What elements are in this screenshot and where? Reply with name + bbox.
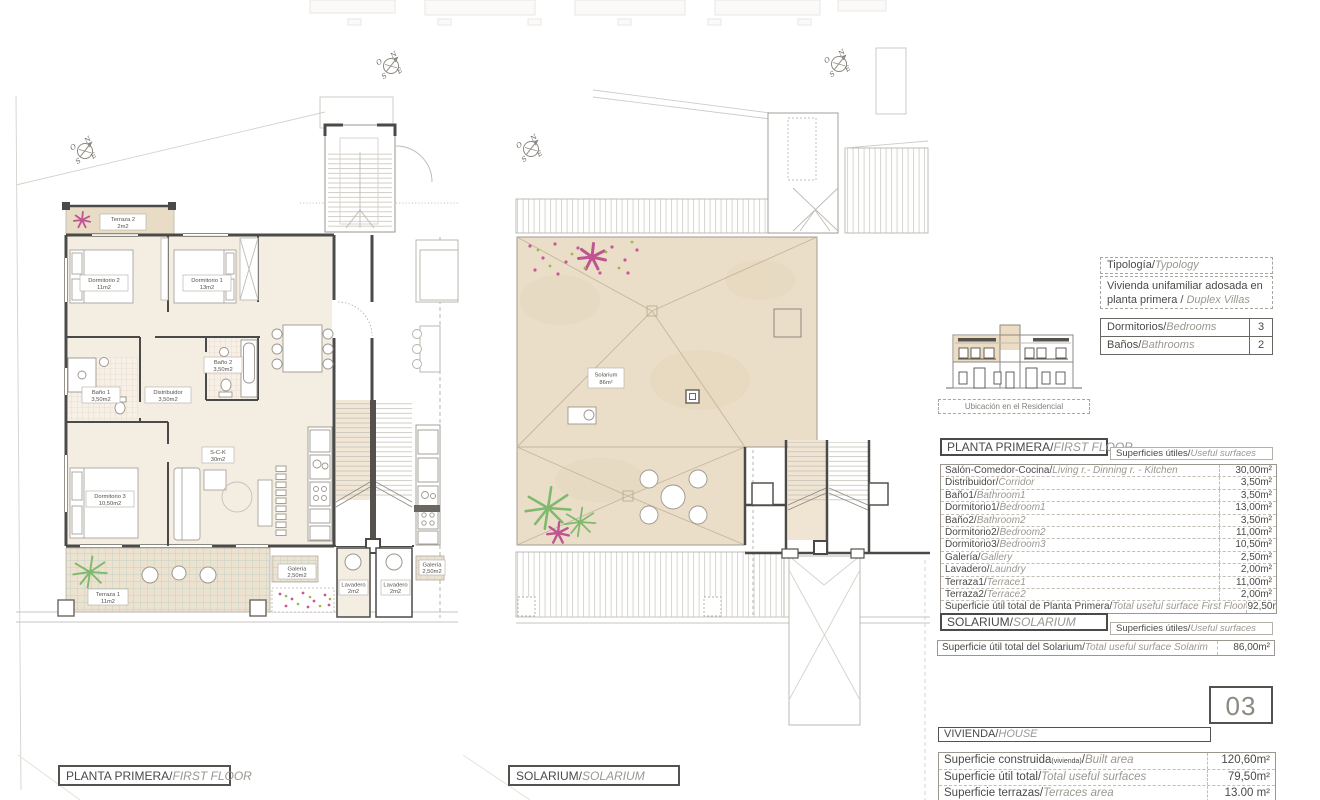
- surface-value: 11,00m²: [1219, 527, 1276, 538]
- surface-value: 13.00 m²: [1207, 786, 1275, 800]
- surface-row: Terraza2/Terrace22,00m²: [941, 588, 1276, 600]
- surface-value: 10,50m²: [1219, 539, 1276, 550]
- room-label: Galería2,50m2: [278, 564, 316, 579]
- surface-row: Dormitorio2/Bedroom211,00m²: [941, 526, 1276, 538]
- surface-value: 2,00m²: [1219, 589, 1276, 600]
- surface-row: Superficie terrazas/Terraces area 13.00 …: [939, 785, 1275, 800]
- bathrooms-label-en: Bathrooms: [1141, 339, 1194, 351]
- room-label: Baño 13,50m2: [82, 387, 120, 403]
- entry-door-arc: [338, 302, 372, 336]
- svg-text:Terraza 2: Terraza 2: [111, 217, 135, 223]
- svg-text:Terraza 1: Terraza 1: [96, 592, 120, 598]
- surface-value: 120,60m²: [1207, 753, 1275, 769]
- room-label: Terraza 22m2: [100, 214, 146, 230]
- surface-row: Salón-Comedor-Cocina/Living r.- Dinning …: [941, 465, 1276, 476]
- svg-text:2,50m2: 2,50m2: [422, 569, 441, 575]
- surface-value: 13,00m²: [1219, 502, 1276, 513]
- surface-value: 3,50m²: [1219, 490, 1276, 501]
- svg-text:O: O: [69, 142, 79, 152]
- compass-rose: N O E S: [375, 49, 405, 81]
- svg-text:E: E: [395, 66, 405, 76]
- svg-text:11m2: 11m2: [97, 285, 111, 291]
- sol-title-es: SOLARIUM/: [947, 615, 1013, 629]
- first-floor-plan: Terraza 22m2 Dormitorio 211m2 Dormitorio…: [16, 49, 460, 800]
- solarium-subtitle: Superficies útiles/Useful surfaces: [1110, 622, 1273, 635]
- surface-value: 92,50m²: [1246, 601, 1276, 612]
- room-label: Dormitorio 211m2: [80, 275, 128, 291]
- solarium-plan: Solarium 86m² N: [463, 47, 930, 800]
- house-title-es: VIVIENDA/: [944, 728, 998, 740]
- typology-body: Vivienda unifamiliar adosada en planta p…: [1100, 276, 1273, 309]
- svg-text:Dormitorio 2: Dormitorio 2: [88, 278, 120, 284]
- building-elevation: [938, 310, 1090, 396]
- typology-body-en: Duplex Villas: [1186, 294, 1249, 306]
- svg-text:O: O: [515, 140, 525, 150]
- surface-value: 2,50m²: [1219, 552, 1276, 563]
- svg-text:O: O: [375, 57, 385, 67]
- ff-caption-en: FIRST FLOOR: [172, 769, 251, 783]
- svg-text:Dormitorio 3: Dormitorio 3: [94, 494, 126, 500]
- room-label: Baño 23,50m2: [204, 357, 242, 373]
- room-label: Dormitorio 310,50m2: [86, 491, 134, 507]
- svg-text:Galería: Galería: [287, 567, 307, 573]
- typology-header: Tipología/Typology: [1100, 257, 1273, 274]
- neighbour-fragments: [413, 240, 459, 580]
- surface-value: 3,50m²: [1219, 515, 1276, 526]
- svg-text:2m2: 2m2: [117, 224, 128, 230]
- tv-unit: [258, 480, 272, 526]
- sol-subtitle-es: Superficies útiles/: [1116, 623, 1190, 634]
- first-floor-subtitle: Superficies útiles/Useful surfaces: [1110, 447, 1273, 460]
- room-terraza1: [58, 548, 270, 616]
- svg-text:30m2: 30m2: [211, 457, 226, 463]
- room-label: Galería2,50m2: [419, 560, 445, 575]
- svg-text:2,50m2: 2,50m2: [287, 573, 306, 579]
- sol-caption-es: SOLARIUM/: [516, 769, 582, 783]
- bedrooms-row: Dormitorios/Bedrooms 3: [1101, 319, 1272, 336]
- surface-row: Baño1/Bathroom13,50m²: [941, 489, 1276, 501]
- svg-text:E: E: [843, 64, 853, 74]
- svg-text:E: E: [89, 151, 99, 161]
- first-floor-caption: PLANTA PRIMERA/FIRST FLOOR: [58, 765, 231, 786]
- duplex-stairs: [336, 400, 412, 553]
- ff-subtitle-en: Useful surfaces: [1190, 448, 1255, 459]
- svg-text:2m2: 2m2: [348, 589, 359, 595]
- typology-title-es: Tipología/: [1107, 259, 1155, 271]
- ff-subtitle-es: Superficies útiles/: [1116, 448, 1190, 459]
- surface-row: Dormitorio1/Bedroom113,00m²: [941, 501, 1276, 513]
- sol-caption-en: SOLARIUM: [582, 769, 645, 783]
- svg-text:11m2: 11m2: [101, 599, 115, 605]
- surface-row: Lavadero/Laundry2,00m²: [941, 563, 1276, 575]
- location-caption: Ubicación en el Residencial: [938, 399, 1090, 414]
- surface-row: Galería/Gallery2,50m²: [941, 551, 1276, 563]
- first-floor-surfaces-table: Salón-Comedor-Cocina/Living r.- Dinning …: [940, 464, 1277, 614]
- surface-value: 30,00m²: [1219, 465, 1276, 476]
- svg-text:S-C-K: S-C-K: [210, 450, 226, 456]
- common-stairwell: [325, 125, 432, 232]
- svg-text:Dormitorio 1: Dormitorio 1: [191, 278, 223, 284]
- surface-value: 3,50m²: [1219, 477, 1276, 488]
- svg-text:13m2: 13m2: [200, 285, 215, 291]
- sol-title-en: SOLARIUM: [1013, 615, 1076, 629]
- house-surfaces-table: Superficie construida(vivienda)/Built ar…: [938, 752, 1276, 800]
- room-label: Solarium 86m²: [588, 368, 624, 388]
- surface-value: 79,50m²: [1207, 770, 1275, 786]
- neighbour-dining: [413, 326, 441, 372]
- solarium-stairs: [745, 440, 930, 558]
- bathrooms-count: 2: [1249, 337, 1272, 354]
- compass-rose: N O E S: [69, 134, 99, 166]
- svg-text:Lavadero: Lavadero: [341, 583, 365, 589]
- svg-text:3,50m2: 3,50m2: [91, 397, 110, 403]
- flower-bed: [272, 588, 334, 612]
- room-label: Distribuidor3,50m2: [145, 387, 191, 403]
- svg-text:Galería: Galería: [422, 563, 442, 569]
- surface-value: 2,00m²: [1219, 564, 1276, 575]
- ff-caption-es: PLANTA PRIMERA/: [66, 769, 172, 783]
- bathrooms-label-es: Baños/: [1107, 339, 1141, 351]
- room-label: Terraza 111m2: [88, 589, 128, 605]
- floor-plan-drawing: Terraza 22m2 Dormitorio 211m2 Dormitorio…: [0, 0, 935, 800]
- solarium-caption: SOLARIUM/SOLARIUM: [508, 765, 680, 786]
- surface-row: Terraza1/Terrace111,00m²: [941, 576, 1276, 588]
- top-cutoff-artifacts: [310, 0, 886, 25]
- first-floor-table-title: PLANTA PRIMERA/FIRST FLOOR: [940, 438, 1108, 456]
- shelf-column: [276, 466, 286, 536]
- svg-text:86m²: 86m²: [599, 380, 612, 386]
- bedrooms-count: 3: [1249, 319, 1272, 336]
- svg-text:Solarium: Solarium: [595, 373, 618, 379]
- solarium-table-title: SOLARIUM/SOLARIUM: [940, 613, 1108, 631]
- architectural-plan-sheet: Terraza 22m2 Dormitorio 211m2 Dormitorio…: [0, 0, 1320, 800]
- compass-rose: N O E S: [515, 132, 545, 164]
- surface-total-row: Superficie útil total del Solarium/Total…: [938, 641, 1274, 655]
- surface-row: Dormitorio3/Bedroom310,50m²: [941, 538, 1276, 550]
- solarium-surfaces-table: Superficie útil total del Solarium/Total…: [937, 640, 1275, 656]
- svg-text:Lavadero: Lavadero: [383, 583, 407, 589]
- svg-text:Distribuidor: Distribuidor: [153, 390, 182, 396]
- sol-subtitle-en: Useful surfaces: [1190, 623, 1255, 634]
- svg-text:Baño 2: Baño 2: [214, 360, 232, 366]
- house-table-title: VIVIENDA/HOUSE: [938, 727, 1211, 742]
- compass-rose: N O E S: [823, 47, 853, 79]
- surface-value: 86,00m²: [1217, 641, 1274, 655]
- bedrooms-label-es: Dormitorios/: [1107, 321, 1166, 333]
- svg-text:10,50m2: 10,50m2: [99, 501, 122, 507]
- bathrooms-row: Baños/Bathrooms 2: [1101, 336, 1272, 354]
- surface-row: Distribuidor/Corridor3,50m²: [941, 476, 1276, 488]
- svg-text:Baño 1: Baño 1: [92, 390, 110, 396]
- surface-value: 11,00m²: [1219, 577, 1276, 588]
- surface-total-row: Superficie útil total de Planta Primera/…: [941, 600, 1276, 612]
- room-label: Lavadero2m2: [381, 580, 410, 595]
- unit-number: 03: [1209, 686, 1273, 724]
- surface-row: Superficie útil total/Total useful surfa…: [939, 769, 1275, 786]
- room-label: S-C-K30m2: [202, 447, 234, 463]
- surface-row: Baño2/Bathroom23,50m²: [941, 514, 1276, 526]
- svg-text:2m2: 2m2: [390, 589, 401, 595]
- svg-text:E: E: [535, 149, 545, 159]
- svg-text:O: O: [823, 55, 833, 65]
- svg-text:3,50m2: 3,50m2: [213, 367, 232, 373]
- svg-text:3,50m2: 3,50m2: [158, 397, 177, 403]
- bedrooms-label-en: Bedrooms: [1166, 321, 1216, 333]
- dining-table: [272, 325, 333, 372]
- house-title-en: HOUSE: [998, 728, 1037, 740]
- room-label: Dormitorio 113m2: [183, 275, 231, 291]
- room-label: Lavadero2m2: [339, 580, 368, 595]
- kitchen-counter: [308, 427, 332, 541]
- counts-table: Dormitorios/Bedrooms 3 Baños/Bathrooms 2: [1100, 318, 1273, 355]
- neighbour-kitchen: [416, 425, 440, 545]
- surface-row: Superficie construida(vivienda)/Built ar…: [939, 753, 1275, 769]
- ff-title-es: PLANTA PRIMERA/: [947, 440, 1053, 454]
- typology-title-en: Typology: [1155, 259, 1199, 271]
